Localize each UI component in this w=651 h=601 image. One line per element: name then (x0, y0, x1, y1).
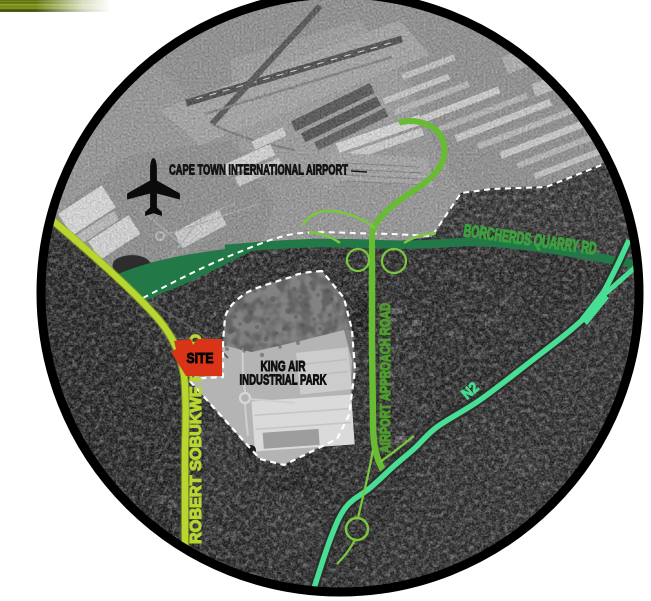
svg-text:AIRPORT APPROACH ROAD: AIRPORT APPROACH ROAD (377, 303, 394, 453)
svg-text:SITE: SITE (187, 350, 214, 367)
svg-text:CAPE TOWN INTERNATIONAL AIRPOR: CAPE TOWN INTERNATIONAL AIRPORT (169, 161, 348, 178)
svg-text:INDUSTRIAL PARK: INDUSTRIAL PARK (240, 371, 328, 388)
